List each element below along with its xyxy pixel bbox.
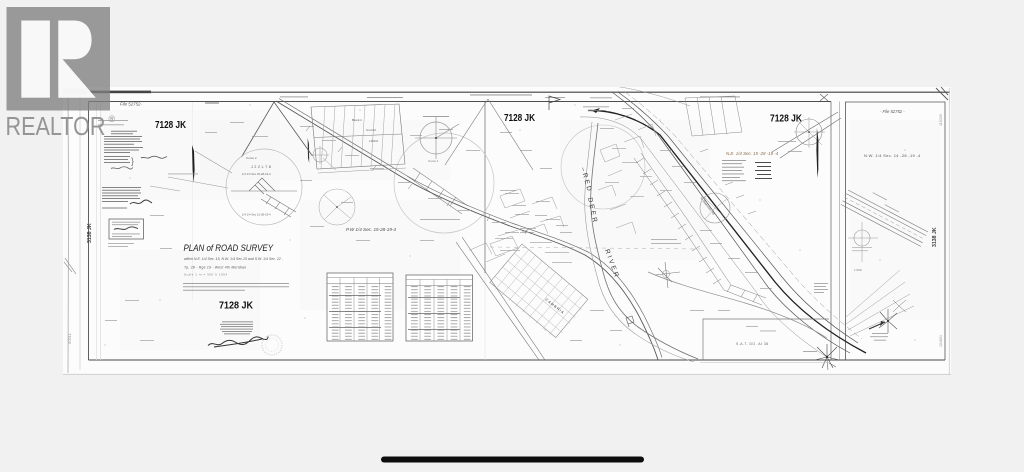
- svg-text:PLAN of ROAD SURVEY: PLAN of ROAD SURVEY: [184, 243, 274, 253]
- svg-text:7128 JK: 7128 JK: [504, 113, 536, 124]
- svg-text:1/4 1/4 Sec 20-28-19-4: 1/4 1/4 Sec 20-28-19-4: [242, 172, 271, 176]
- svg-text:7128 JK: 7128 JK: [219, 300, 253, 312]
- svg-text:Curve 2: Curve 2: [246, 156, 257, 160]
- svg-text:118309: 118309: [939, 114, 943, 126]
- svg-text:Scale 1 in = 300 ft 19: Scale 1 in = 300 ft 1954: [184, 272, 227, 276]
- svg-text:N.W. 1/4 Sec. 14 -28 -19 -4: N.W. 1/4 Sec. 14 -28 -19 -4: [864, 153, 921, 158]
- svg-text:3138 JK: 3138 JK: [87, 223, 93, 243]
- svg-text:146543: 146543: [369, 139, 378, 143]
- svg-text:J22L78: J22L78: [251, 165, 272, 169]
- svg-text:®: ®: [109, 114, 116, 124]
- svg-text:- File 52752 -: - File 52752 -: [880, 109, 905, 114]
- svg-text:1/4 1/4 Sec 21-28-19-4: 1/4 1/4 Sec 21-28-19-4: [242, 213, 271, 217]
- svg-text:within N.E. 1/4 Sec. 15, N.W: within N.E. 1/4 Sec. 15, N.W. 1/4 Sec.15…: [184, 257, 284, 261]
- svg-text:}: }: [131, 156, 134, 166]
- svg-text:N.E. 1/4 Sec. 15 -28 -19 -4: N.E. 1/4 Sec. 15 -28 -19 -4: [726, 151, 779, 156]
- svg-text:104801: 104801: [939, 335, 943, 347]
- svg-text:60511: 60511: [67, 332, 72, 344]
- svg-text:S.A.T. DO. At 38: S.A.T. DO. At 38: [736, 342, 769, 346]
- svg-text:1.000: 1.000: [854, 268, 862, 272]
- svg-text:7128 JK: 7128 JK: [155, 120, 187, 131]
- svg-text:Curve 1: Curve 1: [428, 159, 439, 163]
- svg-text:REALTOR: REALTOR: [6, 111, 106, 141]
- svg-text:Govt Rd: Govt Rd: [366, 128, 376, 132]
- svg-text:File 52752-: File 52752-: [120, 102, 143, 107]
- svg-text:Tp. 28 - Rge 19 - West 4th Mer: Tp. 28 - Rge 19 - West 4th Meridian: [184, 266, 246, 270]
- svg-text:P.W 1/4 Sec. 15-28-19-4: P.W 1/4 Sec. 15-28-19-4: [346, 227, 396, 232]
- svg-text:7128 JK: 7128 JK: [770, 114, 803, 125]
- svg-text:3138 JK: 3138 JK: [932, 227, 938, 247]
- svg-text:Block 1: Block 1: [352, 118, 362, 122]
